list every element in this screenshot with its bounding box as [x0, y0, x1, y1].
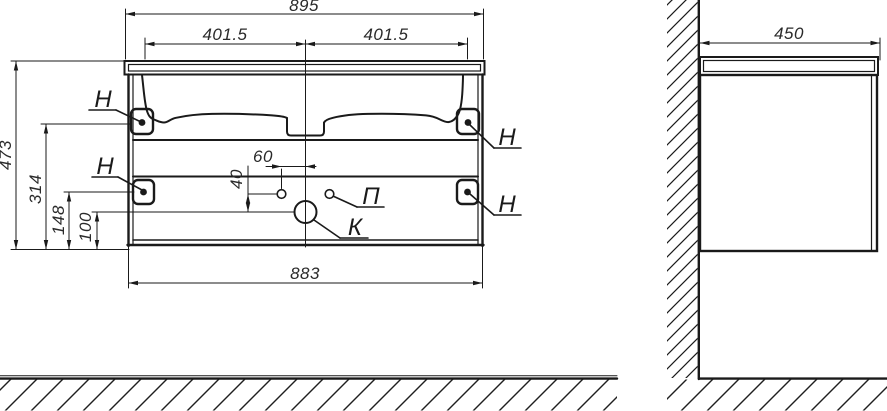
arrowhead [474, 12, 484, 16]
dim-text-supply-offset: 60 [253, 147, 273, 166]
hanger-label-bottom-left: Н [92, 153, 142, 190]
floor-hatch [667, 380, 887, 411]
arrowhead [246, 194, 250, 204]
countertop-inner [704, 61, 875, 72]
countertop-outer [700, 57, 878, 75]
floor-hatch [0, 380, 617, 411]
label-text-hanger: Н [94, 86, 112, 113]
dim-body-width: 883 [129, 247, 483, 288]
hanger-label-top-left: Н [89, 86, 140, 122]
arrowhead [306, 164, 316, 168]
floor-right [667, 379, 887, 411]
body-outline [700, 75, 877, 251]
arrowhead [458, 42, 468, 46]
arrowhead [296, 42, 306, 46]
basin-outline [142, 75, 463, 136]
dim-overall-width: 895 [126, 0, 484, 59]
countertop-inner [129, 65, 481, 72]
arrowhead [700, 41, 710, 45]
drain-label: К [314, 214, 368, 241]
dim-text-total-height: 473 [0, 140, 15, 170]
cabinet-body-side [700, 75, 877, 251]
dim-depth: 450 [700, 24, 880, 60]
side-view: 450 [667, 0, 880, 379]
arrowhead [246, 203, 250, 213]
dim-text-left-half: 401.5 [202, 25, 247, 44]
arrowhead [95, 240, 99, 250]
arrowhead [126, 12, 136, 16]
dim-text-upper-hanger: 314 [26, 174, 45, 204]
arrowhead [306, 42, 316, 46]
dim-text-supply-drop: 40 [227, 169, 246, 189]
supply-hole-right [325, 190, 334, 199]
arrowhead [145, 42, 155, 46]
arrowhead [44, 124, 48, 134]
countertop-front [125, 61, 485, 75]
dim-text-depth: 450 [774, 24, 804, 43]
label-text-drain: К [348, 214, 364, 241]
label-text-hanger: Н [498, 191, 516, 218]
dim-half-widths: 401.5 401.5 [145, 25, 468, 59]
wall-hatch [667, 0, 698, 378]
arrowhead [44, 240, 48, 250]
arrowhead [272, 164, 282, 168]
arrowhead [871, 41, 881, 45]
label-text-hanger: Н [96, 153, 114, 180]
dim-text-right-half: 401.5 [363, 25, 408, 44]
countertop-outer [125, 61, 485, 75]
dim-text-lower-hanger: 148 [49, 205, 68, 235]
front-view: 895 401.5 401.5 473 [0, 0, 521, 288]
arrowhead [473, 281, 483, 285]
label-text-supply: П [362, 183, 380, 210]
hanger-dot-top-left [139, 119, 146, 126]
supply-label: П [334, 183, 384, 210]
arrowhead [67, 240, 71, 250]
floor [0, 376, 887, 411]
technical-drawing-vanity: 895 401.5 401.5 473 [0, 0, 887, 411]
floor-left [0, 376, 617, 411]
arrowhead [67, 192, 71, 202]
dim-supply-drop: 40 [227, 166, 277, 212]
arrowhead [14, 240, 18, 250]
supply-hole-left [277, 190, 286, 199]
countertop-side [700, 57, 878, 75]
arrowhead [95, 212, 99, 222]
arrowhead [129, 281, 139, 285]
wall-section [667, 0, 699, 379]
drawing-canvas: 895 401.5 401.5 473 [0, 0, 887, 411]
dim-text-body-width: 883 [290, 264, 320, 283]
label-text-hanger: Н [498, 124, 516, 151]
dim-supply-offset: 60 [253, 147, 316, 189]
dim-text-drain-height: 100 [76, 212, 95, 242]
label-leader [314, 220, 340, 238]
label-leader [334, 197, 357, 208]
arrowhead [14, 61, 18, 71]
dim-text-overall-width: 895 [289, 0, 319, 15]
